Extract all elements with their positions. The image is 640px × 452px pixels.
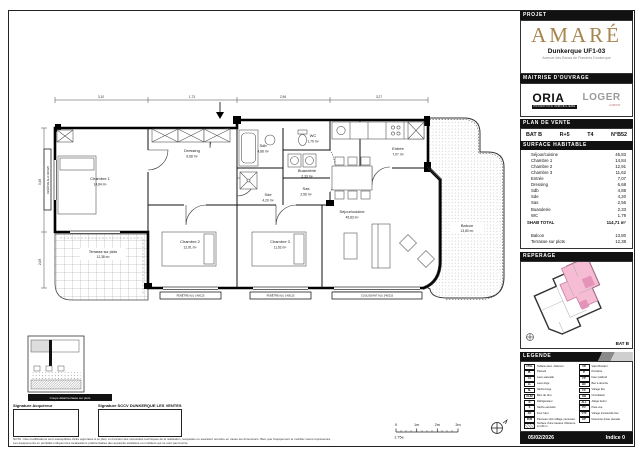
svg-text:11,62 m²: 11,62 m² xyxy=(274,246,288,250)
svg-text:12,38 m²: 12,38 m² xyxy=(96,255,110,259)
svg-text:2,56 m²: 2,56 m² xyxy=(300,193,312,197)
title-block: PROJET AMARÉ Dunkerque UF1-03 Avenue des… xyxy=(520,11,633,444)
key-plan: BAT B xyxy=(520,261,633,349)
svg-text:Chambre 2: Chambre 2 xyxy=(180,239,201,244)
annex-row: Terrasse sur plots12,38 xyxy=(521,239,632,245)
legend-item: EPDescente d'eau pluviale xyxy=(577,417,632,423)
surface-table: Séjour/cuisine45,83 Chambre 114,84 Chamb… xyxy=(520,150,633,249)
svg-text:2,08: 2,08 xyxy=(38,259,42,265)
svg-text:6,68 m²: 6,68 m² xyxy=(186,155,198,159)
svg-text:Terrasse sur plots: Terrasse sur plots xyxy=(89,250,118,254)
section-reperage: REPERAGE xyxy=(520,252,633,261)
svg-text:Sde: Sde xyxy=(264,192,272,197)
detail-inset: Coupe détail terrasse sur plots xyxy=(28,336,112,401)
legend-col-left: VTELTableau élec. /télécom. PLPlacard LV… xyxy=(522,364,577,429)
loger-logo: LOGER HABITAT xyxy=(583,92,621,107)
legend-bar-decoration xyxy=(587,352,633,361)
legend-item: Surface d'une hauteur inférieure à 1,80 … xyxy=(522,423,577,429)
lot-summary: BAT B R+5 T4 N°B52 xyxy=(520,128,633,141)
section-plan-de-vente: PLAN DE VENTE xyxy=(520,119,633,128)
svg-text:4,88 m²: 4,88 m² xyxy=(257,150,269,154)
svg-text:Dressing: Dressing xyxy=(184,148,200,153)
svg-text:Séjour/cuisine: Séjour/cuisine xyxy=(339,209,365,214)
svg-text:2m: 2m xyxy=(435,423,440,427)
legend-col-right: VRVolet Roulant PPenderie FPFaux plafond… xyxy=(577,364,632,429)
nota-text: NOTA : Des modifications sont susceptibl… xyxy=(13,438,493,445)
svg-text:Coupe détail terrasse sur plot: Coupe détail terrasse sur plots xyxy=(50,396,91,400)
buyer-signature-box[interactable] xyxy=(13,409,79,437)
section-moa: MAITRISE D'OUVRAGE xyxy=(520,74,633,83)
svg-text:3,46: 3,46 xyxy=(38,179,42,185)
svg-text:3m: 3m xyxy=(455,423,460,427)
lot-numero: N°B52 xyxy=(611,132,627,138)
svg-text:13,80 m²: 13,80 m² xyxy=(460,229,474,233)
section-legende: LEGENDE xyxy=(520,352,633,361)
svg-text:1,79 m²: 1,79 m² xyxy=(307,140,319,144)
buyer-signature-label: Signature Acquéreur xyxy=(13,403,52,408)
section-projet: PROJET xyxy=(520,11,633,20)
terrace-outline xyxy=(55,234,148,300)
legend: VTELTableau élec. /télécom. PLPlacard LV… xyxy=(520,361,633,432)
brand-box: AMARÉ Dunkerque UF1-03 Avenue des Bancs … xyxy=(520,20,633,74)
lot-type: T4 xyxy=(587,132,593,138)
svg-text:Chambre 3: Chambre 3 xyxy=(270,239,291,244)
svg-text:3,10: 3,10 xyxy=(98,95,104,99)
svg-text:COULISSANT ALU 240/215: COULISSANT ALU 240/215 xyxy=(361,294,394,298)
oria-logo: ORIA PROMOTION IMMOBILIERE xyxy=(532,91,576,109)
key-plan-drawing xyxy=(521,262,632,346)
plan-indice: Indice 0 xyxy=(606,435,625,441)
entrance-arrow xyxy=(216,102,224,119)
svg-text:2,96: 2,96 xyxy=(280,95,286,99)
seller-signature-box[interactable] xyxy=(98,409,182,437)
brand-logo: AMARÉ xyxy=(521,24,632,46)
svg-text:1,73: 1,73 xyxy=(189,95,195,99)
svg-text:3,27: 3,27 xyxy=(376,95,382,99)
svg-text:Sdb: Sdb xyxy=(259,143,267,148)
svg-text:14,84 m²: 14,84 m² xyxy=(93,183,107,187)
svg-text:4,20 m²: 4,20 m² xyxy=(262,199,274,203)
svg-text:7,07 m²: 7,07 m² xyxy=(392,153,404,157)
svg-text:Entrée: Entrée xyxy=(392,146,405,151)
table-row: WC1,79 xyxy=(521,213,632,219)
svg-text:1m: 1m xyxy=(414,423,419,427)
moa-logos: ORIA PROMOTION IMMOBILIERE LOGER HABITAT xyxy=(520,83,633,117)
svg-text:12,91 m²: 12,91 m² xyxy=(183,246,197,250)
unit-title: Dunkerque UF1-03 xyxy=(521,48,632,55)
svg-text:2,33 m²: 2,33 m² xyxy=(301,175,313,179)
lot-etage: R+5 xyxy=(560,132,570,138)
svg-text:Sas: Sas xyxy=(303,186,310,191)
key-plan-bat-label: BAT B xyxy=(616,341,629,346)
project-address: Avenue des Bancs de Flandres Dunkerque xyxy=(521,56,632,60)
svg-text:Chambre 1: Chambre 1 xyxy=(90,176,111,181)
footer-bar: 05/02/2026 Indice 0 xyxy=(520,432,633,444)
plan-date: 05/02/2026 xyxy=(528,435,554,441)
lot-bat: BAT B xyxy=(526,132,542,138)
svg-text:WC: WC xyxy=(310,133,317,138)
svg-text:Buanderie: Buanderie xyxy=(298,168,317,173)
key-plan-north-icon xyxy=(527,334,534,341)
svg-text:0: 0 xyxy=(395,423,397,427)
svg-text:45,83 m²: 45,83 m² xyxy=(345,216,359,220)
svg-text:Balcon: Balcon xyxy=(461,223,473,228)
seller-signature-label: Signature SCCV DUNKERQUE LES VENTES xyxy=(98,403,182,408)
compass-icon xyxy=(492,420,508,434)
section-surface: SURFACE HABITABLE xyxy=(520,141,633,150)
